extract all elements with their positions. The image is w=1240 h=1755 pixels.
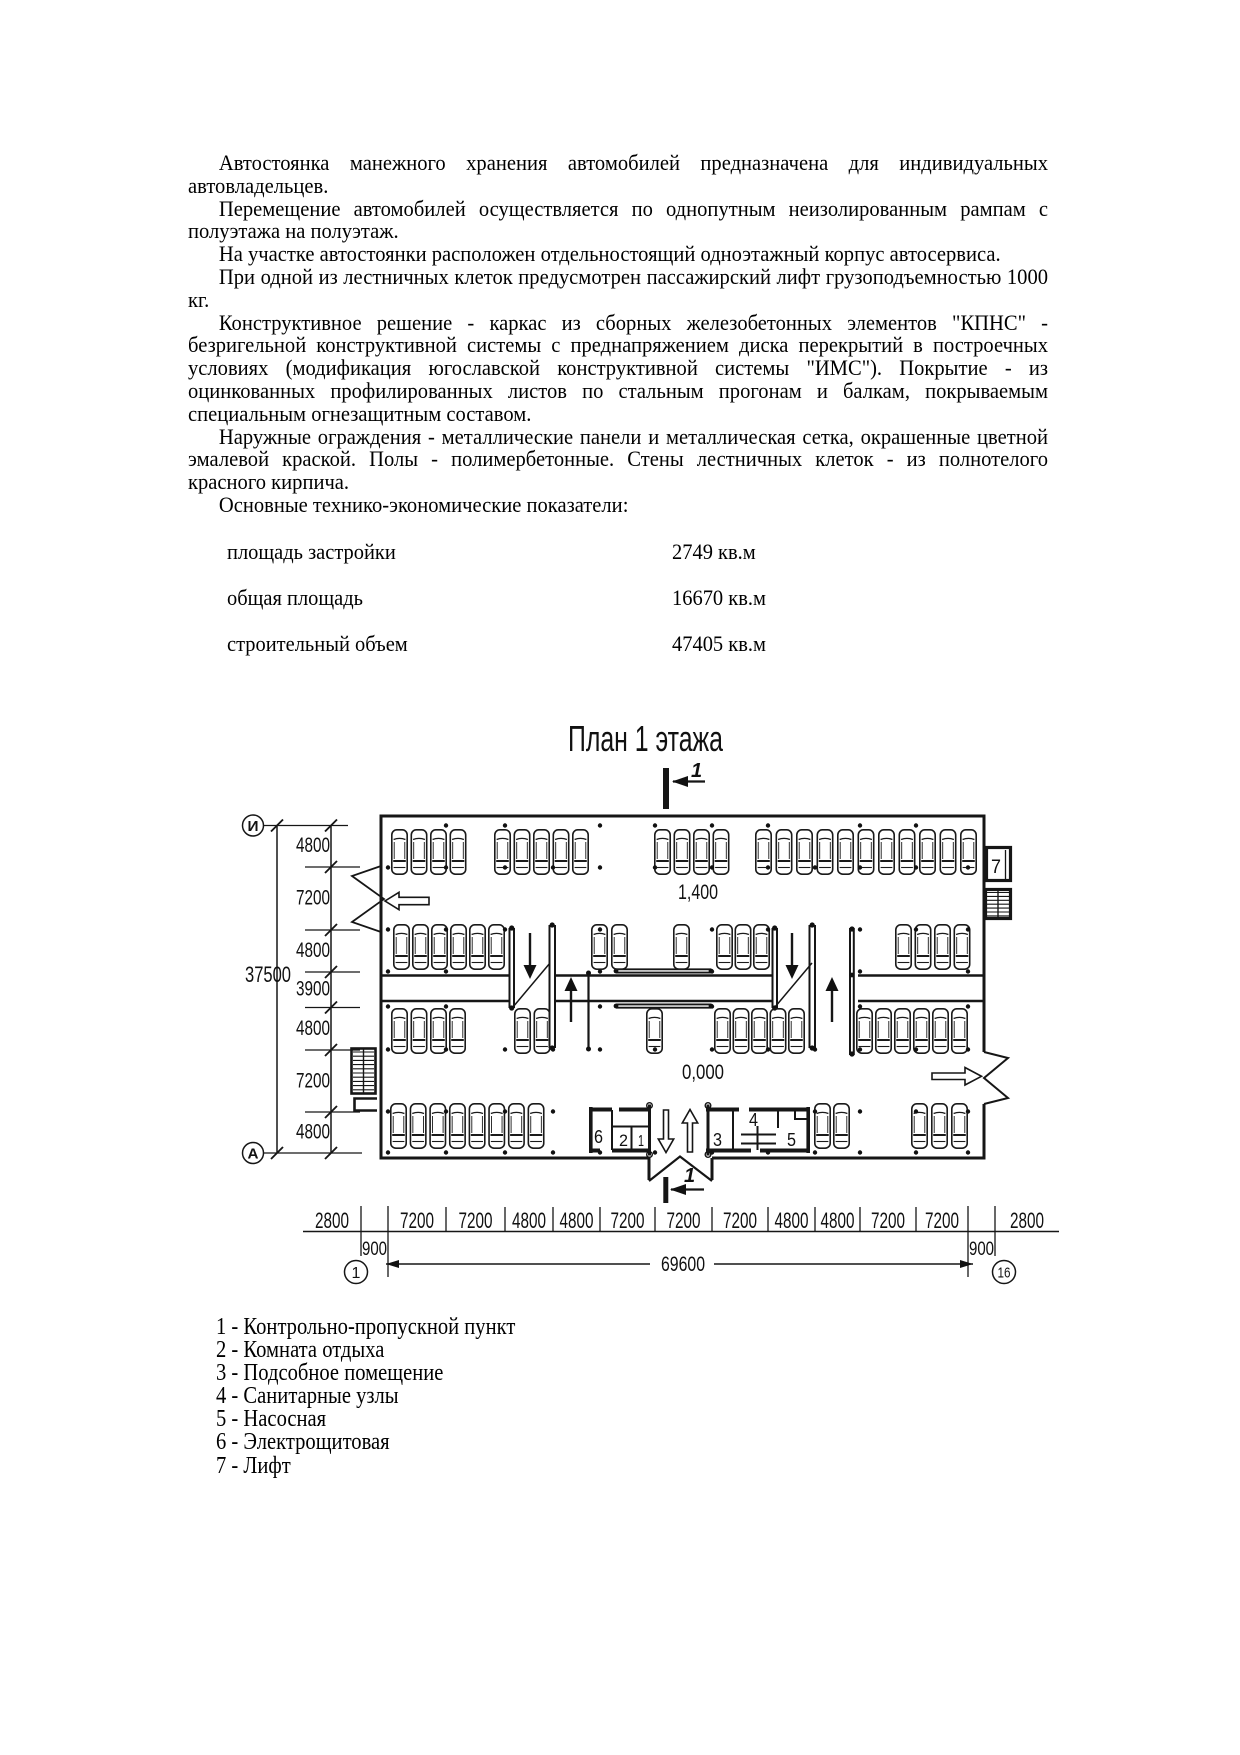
svg-text:1,400: 1,400 <box>678 881 718 904</box>
svg-text:2800: 2800 <box>315 1208 349 1233</box>
svg-text:37500: 37500 <box>245 962 291 987</box>
svg-text:2800: 2800 <box>1010 1208 1044 1233</box>
svg-text:7200: 7200 <box>667 1208 701 1233</box>
svg-text:1: 1 <box>691 760 702 782</box>
svg-text:4800: 4800 <box>296 938 330 962</box>
svg-text:4800: 4800 <box>560 1208 594 1233</box>
svg-text:7200: 7200 <box>611 1208 645 1233</box>
svg-text:4800: 4800 <box>296 1016 330 1040</box>
svg-text:7200: 7200 <box>723 1208 757 1233</box>
svg-text:7200: 7200 <box>871 1208 905 1233</box>
svg-text:900: 900 <box>362 1239 387 1260</box>
svg-text:4800: 4800 <box>296 833 330 857</box>
svg-text:1: 1 <box>684 1165 695 1187</box>
svg-text:7200: 7200 <box>459 1208 493 1233</box>
svg-text:3900: 3900 <box>296 977 330 1001</box>
svg-text:И: И <box>248 818 259 835</box>
svg-text:5: 5 <box>787 1130 796 1150</box>
svg-text:7: 7 <box>991 857 1001 878</box>
svg-text:План 1 этажа: План 1 этажа <box>568 718 724 759</box>
svg-text:69600: 69600 <box>661 1253 705 1276</box>
svg-text:7200: 7200 <box>400 1208 434 1233</box>
svg-text:4: 4 <box>749 1110 758 1130</box>
svg-text:4800: 4800 <box>821 1208 855 1233</box>
svg-text:А: А <box>248 1146 259 1163</box>
svg-text:6: 6 <box>594 1127 603 1147</box>
svg-text:4800: 4800 <box>512 1208 546 1233</box>
svg-text:900: 900 <box>969 1239 994 1260</box>
svg-text:3: 3 <box>713 1130 722 1150</box>
svg-text:4800: 4800 <box>775 1208 809 1233</box>
svg-text:7200: 7200 <box>296 1069 330 1093</box>
svg-text:4800: 4800 <box>296 1120 330 1144</box>
svg-text:1: 1 <box>638 1133 644 1150</box>
svg-text:7200: 7200 <box>296 886 330 910</box>
svg-text:1: 1 <box>352 1265 361 1282</box>
svg-text:16: 16 <box>998 1265 1011 1282</box>
svg-text:0,000: 0,000 <box>682 1061 724 1084</box>
svg-text:2: 2 <box>619 1131 628 1150</box>
svg-text:7200: 7200 <box>925 1208 959 1233</box>
